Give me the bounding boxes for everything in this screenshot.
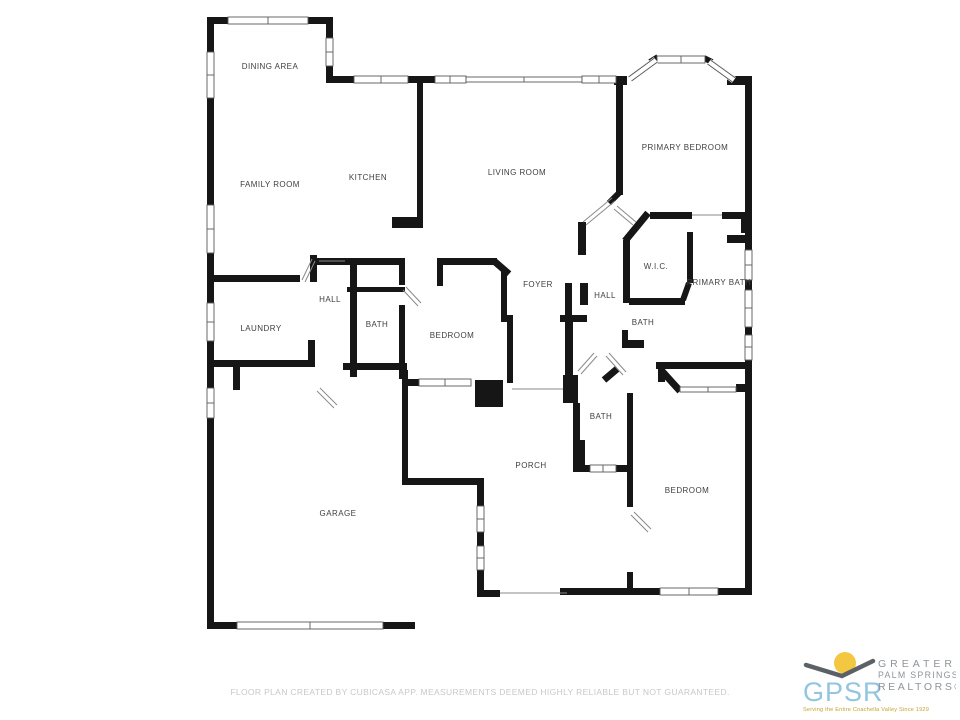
logo-tagline: Serving the Entire Coachella Valley Sinc… bbox=[803, 707, 929, 713]
logo-name-line2: PALM SPRINGS bbox=[878, 670, 956, 680]
room-label-kitchen: KITCHEN bbox=[349, 173, 387, 182]
room-label-wic: W.I.C. bbox=[644, 262, 668, 271]
room-label-hall-left: HALL bbox=[319, 295, 341, 304]
floor-plan-page: DINING AREAFAMILY ROOMKITCHENLIVING ROOM… bbox=[0, 0, 960, 720]
door-marks bbox=[302, 198, 722, 593]
logo-name-line3: REALTORS® bbox=[878, 681, 956, 693]
logo-acronym: GPSR bbox=[803, 677, 884, 707]
room-label-bath-bottom: BATH bbox=[590, 412, 613, 421]
room-label-garage: GARAGE bbox=[320, 509, 357, 518]
room-label-bath-center: BATH bbox=[366, 320, 389, 329]
floor-plan-drawing: DINING AREAFAMILY ROOMKITCHENLIVING ROOM… bbox=[0, 0, 960, 720]
room-label-hall-right: HALL bbox=[594, 291, 616, 300]
walls bbox=[207, 17, 752, 629]
bay-window-right bbox=[708, 60, 736, 82]
room-label-bedroom-center: BEDROOM bbox=[430, 331, 475, 340]
room-label-laundry: LAUNDRY bbox=[240, 324, 281, 333]
room-label-dining-area: DINING AREA bbox=[242, 62, 299, 71]
room-label-porch: PORCH bbox=[515, 461, 546, 470]
room-label-bedroom-bottom: BEDROOM bbox=[665, 486, 710, 495]
gpsr-logo: GPSR GREATER PALM SPRINGS REALTORS® Serv… bbox=[802, 650, 956, 716]
bay-window-left bbox=[629, 58, 658, 81]
room-label-family-room: FAMILY ROOM bbox=[240, 180, 300, 189]
room-label-bath-right: BATH bbox=[632, 318, 655, 327]
room-labels: DINING AREAFAMILY ROOMKITCHENLIVING ROOM… bbox=[240, 62, 751, 518]
room-label-primary-bath: PRIMARY BATH bbox=[687, 278, 752, 287]
room-label-foyer: FOYER bbox=[523, 280, 553, 289]
diagonal-walls bbox=[494, 57, 712, 391]
room-label-living-room: LIVING ROOM bbox=[488, 168, 546, 177]
room-label-primary-bedroom: PRIMARY BEDROOM bbox=[642, 143, 728, 152]
logo-name-line1: GREATER bbox=[878, 658, 956, 670]
